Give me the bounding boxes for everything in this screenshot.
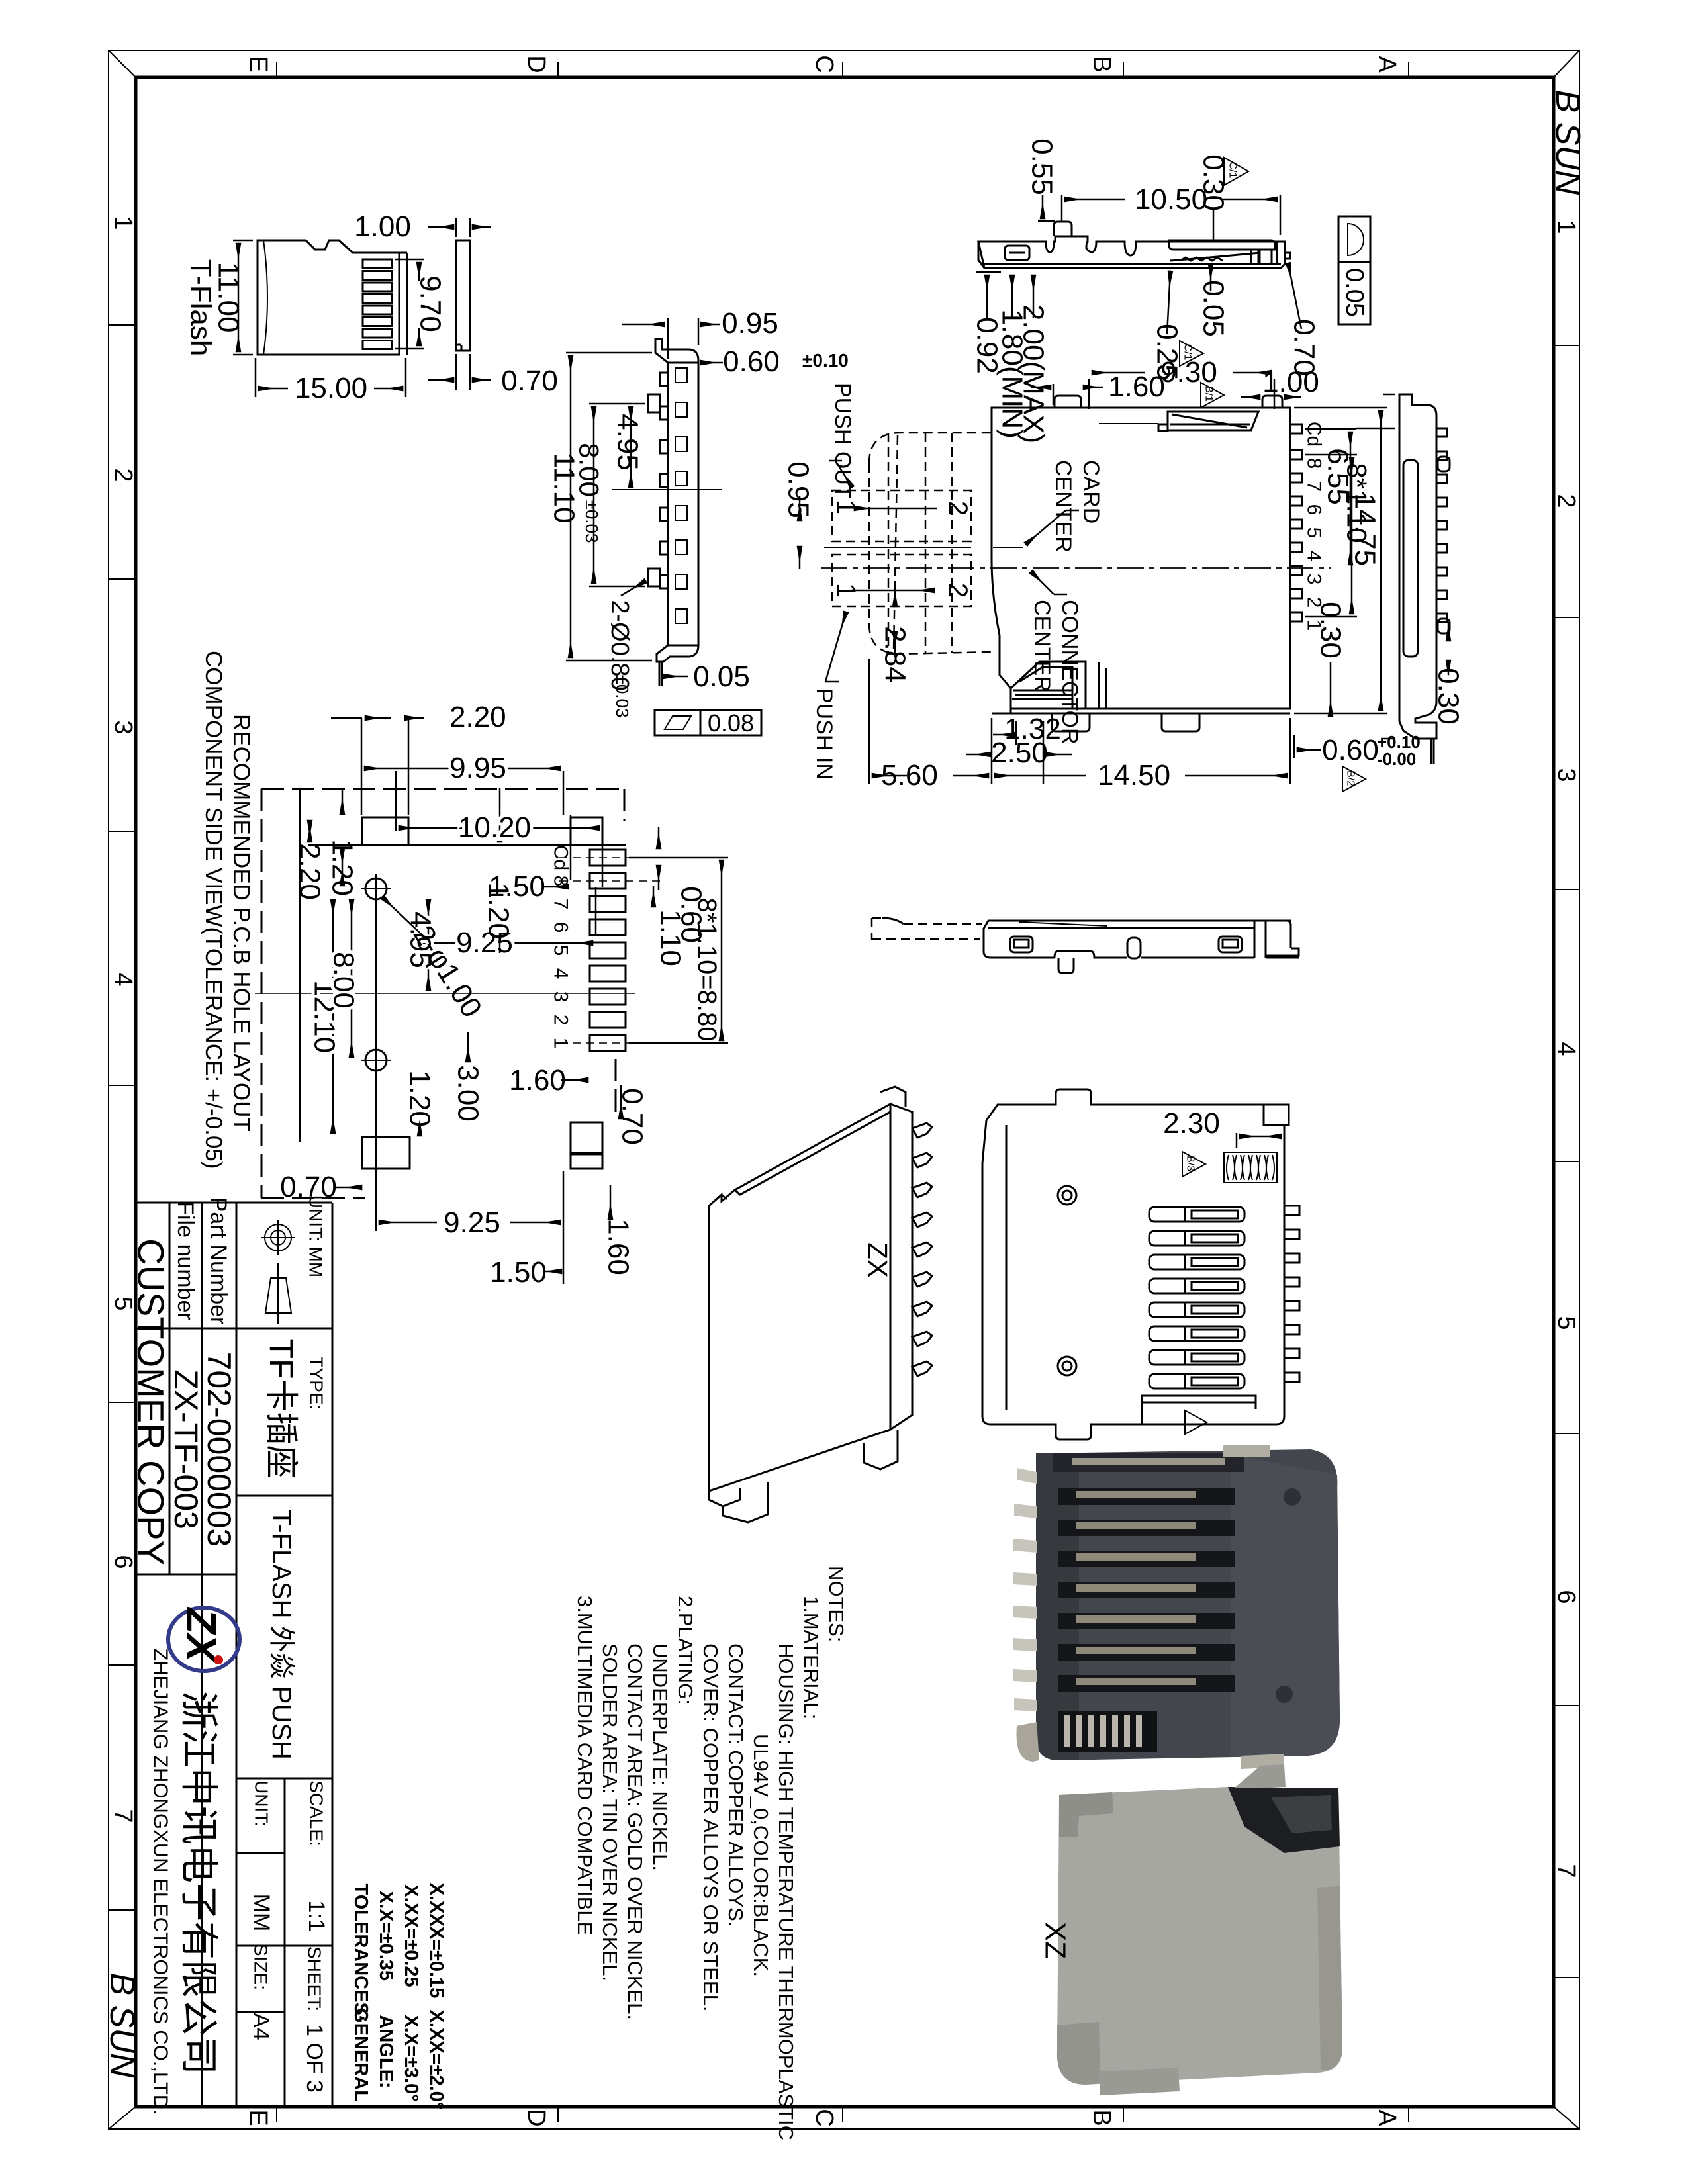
svg-text:1: 1 (109, 216, 137, 230)
svg-text:9.95: 9.95 (449, 752, 506, 784)
svg-text:UNIT: MM: UNIT: MM (306, 1195, 326, 1277)
svg-text:CONTACT AREA: GOLD OVER NI: CONTACT AREA: GOLD OVER NICKEL. (624, 1643, 647, 2020)
svg-text:3.MULTIMEDIA CARD COMPATIBLE: 3.MULTIMEDIA CARD COMPATIBLE (573, 1596, 596, 1935)
svg-text:1.MATERIAL:: 1.MATERIAL: (800, 1596, 823, 1719)
svg-text:X.X=±0.35: X.X=±0.35 (375, 1891, 397, 1981)
svg-text:PUSH IN: PUSH IN (812, 688, 837, 780)
svg-text:0.55: 0.55 (1026, 138, 1058, 195)
svg-text:B SUN: B SUN (1548, 90, 1587, 195)
svg-text:A: A (1373, 56, 1401, 73)
svg-text:8: 8 (550, 876, 572, 887)
svg-text:3: 3 (1303, 574, 1325, 585)
svg-text:6: 6 (1552, 1590, 1580, 1604)
svg-text:0.05: 0.05 (1340, 268, 1368, 317)
svg-text:4: 4 (109, 972, 137, 986)
svg-text:0.30: 0.30 (1197, 154, 1230, 211)
svg-text:4: 4 (1303, 551, 1325, 562)
svg-text:14.50: 14.50 (1098, 759, 1170, 792)
svg-text:B: B (1088, 2109, 1115, 2126)
svg-text:1:1: 1:1 (304, 1900, 329, 1931)
svg-text:0.30: 0.30 (1432, 668, 1465, 725)
svg-text:6: 6 (1303, 504, 1325, 516)
svg-text:TOLERANCES:: TOLERANCES: (350, 1884, 371, 2022)
svg-text:Part Number: Part Number (206, 1197, 231, 1325)
svg-text:GENERAL: GENERAL (350, 2008, 371, 2102)
svg-text:6: 6 (550, 922, 572, 933)
svg-text:11.00: 11.00 (212, 262, 245, 333)
svg-text:1 OF 3: 1 OF 3 (302, 2024, 327, 2093)
svg-text:C: C (810, 55, 838, 73)
svg-text:Cd: Cd (1303, 422, 1325, 447)
svg-text:TF卡插座: TF卡插座 (263, 1338, 300, 1478)
svg-text:±0.03: ±0.03 (612, 675, 632, 718)
svg-text:T-FLASH 外焱 PUSH: T-FLASH 外焱 PUSH (267, 1510, 296, 1760)
svg-text:Cd: Cd (550, 845, 572, 870)
svg-text:8*1.10=8.80: 8*1.10=8.80 (692, 898, 722, 1042)
svg-text:E: E (244, 2109, 272, 2126)
svg-text:0.70: 0.70 (280, 1171, 337, 1203)
svg-text:1.20: 1.20 (404, 1070, 436, 1127)
svg-text:8.00: 8.00 (328, 952, 360, 1009)
svg-text:RECOMMENDED P.C.B HOLE LAYO: RECOMMENDED P.C.B HOLE LAYOUT (228, 714, 254, 1132)
svg-text:NOTES:: NOTES: (825, 1566, 848, 1642)
svg-text:7: 7 (1552, 1864, 1580, 1878)
svg-text:7: 7 (550, 899, 572, 910)
svg-text:UNDERPLATE: NICKEL.: UNDERPLATE: NICKEL. (649, 1643, 672, 1871)
svg-text:B: B (1088, 56, 1115, 72)
svg-text:HOUSING: HIGH TEMPERATURE T: HOUSING: HIGH TEMPERATURE THERMOPLASTIC (774, 1643, 798, 2140)
svg-text:5: 5 (1303, 527, 1325, 539)
svg-text:0.30: 0.30 (1315, 602, 1347, 659)
svg-text:0.05: 0.05 (693, 660, 750, 693)
svg-text:E: E (244, 56, 272, 72)
svg-text:UL94V_0,COLOR:BLACK.: UL94V_0,COLOR:BLACK. (749, 1734, 773, 1977)
svg-text:0.95: 0.95 (782, 461, 815, 518)
svg-text:14.75: 14.75 (1349, 493, 1382, 566)
svg-text:4: 4 (550, 968, 572, 979)
svg-text:ANGLE:: ANGLE: (375, 2015, 397, 2088)
svg-text:2.50: 2.50 (991, 737, 1048, 769)
svg-text:UNIT:: UNIT: (252, 1780, 272, 1827)
svg-text:0.70: 0.70 (501, 365, 558, 397)
svg-text:1.60: 1.60 (602, 1218, 635, 1275)
svg-text:2.30: 2.30 (1163, 1107, 1220, 1140)
svg-text:2: 2 (943, 583, 972, 598)
svg-text:1.00: 1.00 (1262, 366, 1319, 398)
svg-text:File number: File number (173, 1201, 198, 1320)
svg-text:2: 2 (1552, 494, 1580, 508)
svg-text:4: 4 (1552, 1042, 1580, 1056)
svg-text:10.50: 10.50 (1135, 183, 1207, 216)
svg-text:1: 1 (831, 500, 861, 514)
svg-text:3.00: 3.00 (452, 1065, 485, 1122)
svg-text:7: 7 (109, 1809, 137, 1823)
svg-text:ZHEJIANG ZHONGXUN ELECTRONICS: ZHEJIANG ZHONGXUN ELECTRONICS CO.,LTD. (150, 1648, 173, 2115)
svg-text:X.XXX=±0.15: X.XXX=±0.15 (426, 1883, 447, 1999)
svg-text:SCALE:: SCALE: (306, 1780, 327, 1846)
svg-text:1: 1 (1552, 220, 1580, 234)
svg-text:9.30: 9.30 (1160, 356, 1217, 388)
svg-text:3: 3 (109, 720, 137, 734)
svg-text:B/1: B/1 (1203, 386, 1215, 402)
svg-text:1.00: 1.00 (354, 210, 411, 243)
svg-text:C: C (810, 2109, 838, 2126)
svg-text:ZX-TF-003: ZX-TF-003 (167, 1369, 205, 1529)
svg-text:COMPONENT SIDE VIEW(TOLERANC: COMPONENT SIDE VIEW(TOLERANCE: +/-0.05) (201, 651, 226, 1169)
svg-text:D: D (522, 55, 550, 73)
svg-text:1.20: 1.20 (483, 882, 515, 939)
svg-text:9.70: 9.70 (414, 275, 447, 332)
svg-text:15.00: 15.00 (295, 372, 367, 404)
svg-text:4.95: 4.95 (612, 414, 644, 471)
svg-text:8.00: 8.00 (574, 443, 605, 497)
svg-text:702-0000003: 702-0000003 (201, 1352, 238, 1547)
svg-text:B/3: B/3 (1185, 1156, 1196, 1171)
svg-text:±0.10: ±0.10 (802, 350, 849, 371)
svg-text:PUSH OUT: PUSH OUT (830, 383, 855, 499)
svg-text:0.60: 0.60 (1322, 734, 1379, 766)
svg-text:SHEET:: SHEET: (305, 1946, 325, 2011)
svg-text:XZ: XZ (1039, 1922, 1072, 1959)
svg-text:A4: A4 (248, 2013, 273, 2040)
svg-text:3: 3 (550, 991, 572, 1003)
svg-text:2: 2 (943, 501, 972, 516)
svg-text:浙江中讯电子有限公司: 浙江中讯电子有限公司 (177, 1691, 220, 2075)
svg-text:B/2: B/2 (1345, 770, 1356, 786)
svg-text:B SUN: B SUN (103, 1973, 141, 2078)
svg-text:CUSTOMER COPY: CUSTOMER COPY (130, 1238, 172, 1565)
svg-text:0.60: 0.60 (723, 345, 780, 378)
svg-text:X.XX=±2.0°: X.XX=±2.0° (426, 2010, 447, 2110)
svg-text:0.08: 0.08 (708, 709, 754, 737)
svg-text:0.05: 0.05 (1197, 280, 1230, 337)
svg-text:2: 2 (550, 1015, 572, 1026)
svg-text:SOLDER AREA: TIN OVER NICK: SOLDER AREA: TIN OVER NICKEL. (598, 1643, 622, 1981)
svg-text:X.X=±3.0°: X.X=±3.0° (400, 2015, 422, 2102)
svg-text:2.84: 2.84 (879, 626, 912, 683)
svg-text:1: 1 (550, 1038, 572, 1049)
svg-text:±0.03: ±0.03 (582, 500, 602, 543)
svg-text:MM: MM (249, 1894, 274, 1932)
svg-text:9.25: 9.25 (444, 1206, 500, 1239)
svg-text:D: D (522, 2109, 550, 2126)
svg-text:A: A (1373, 2109, 1401, 2126)
svg-text:10.20: 10.20 (458, 811, 531, 844)
svg-text:5: 5 (1552, 1316, 1580, 1330)
svg-text:-0.00: -0.00 (1377, 749, 1416, 769)
svg-text:1.60: 1.60 (509, 1064, 566, 1097)
svg-text:ZX: ZX (863, 1242, 894, 1278)
svg-text:X.XX=±0.25: X.XX=±0.25 (400, 1884, 422, 1987)
svg-text:0.95: 0.95 (722, 307, 778, 340)
svg-text:2.PLATING:: 2.PLATING: (674, 1596, 697, 1705)
svg-text:2.00(MAX): 2.00(MAX) (1017, 304, 1050, 443)
svg-text:2.20: 2.20 (449, 701, 506, 733)
svg-text:1.60: 1.60 (1108, 371, 1165, 403)
svg-text:T-Flash: T-Flash (185, 259, 217, 357)
svg-text:CONTACT: COPPER ALLOYS.: CONTACT: COPPER ALLOYS. (724, 1643, 747, 1927)
svg-text:1.10: 1.10 (655, 909, 687, 966)
svg-text:1: 1 (831, 583, 861, 598)
svg-text:3: 3 (1552, 768, 1580, 782)
svg-text:TYPE:: TYPE: (306, 1357, 327, 1410)
svg-text:1.50: 1.50 (490, 1256, 547, 1289)
svg-text:2: 2 (109, 468, 137, 482)
svg-text:COVER: COPPER ALLOYS OR ST: COVER: COPPER ALLOYS OR STEEL. (699, 1643, 722, 2011)
svg-text:2.20: 2.20 (294, 843, 326, 900)
svg-text:5.60: 5.60 (881, 759, 938, 792)
svg-text:SIZE:: SIZE: (251, 1944, 271, 1990)
svg-text:5: 5 (550, 945, 572, 956)
svg-text:C/1: C/1 (1227, 162, 1239, 179)
